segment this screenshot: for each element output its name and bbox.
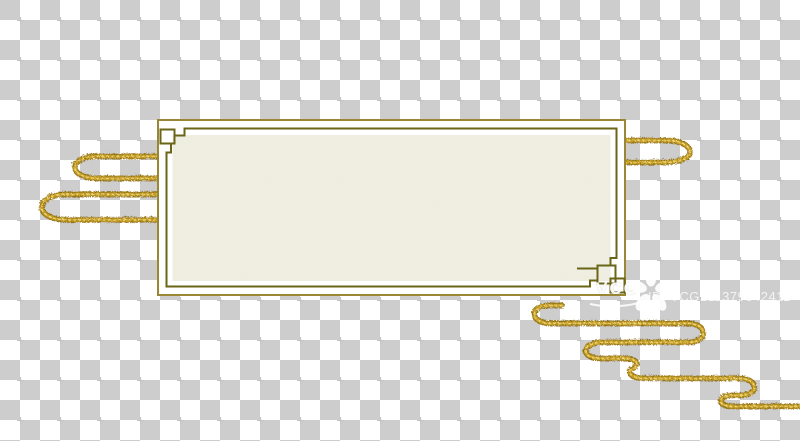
ornate-frame (158, 120, 625, 295)
transparent-checkerboard-canvas: VCG ID: VCG211379642411 (0, 0, 800, 441)
artwork-layer (0, 0, 800, 441)
frame-panel-texture (173, 135, 611, 281)
